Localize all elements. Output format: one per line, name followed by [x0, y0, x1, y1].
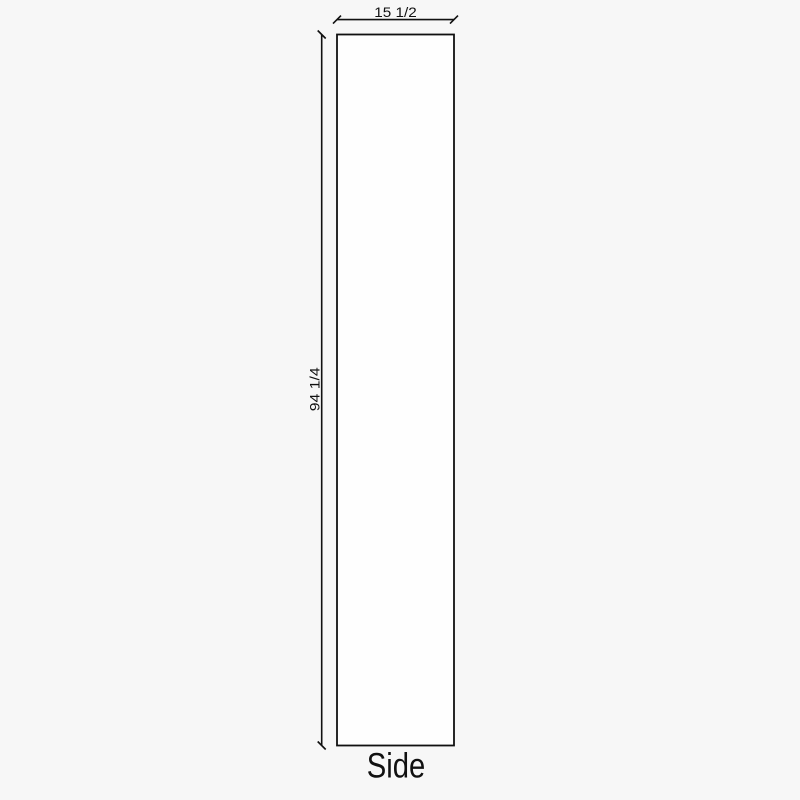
svg-text:94 1/4: 94 1/4 [306, 367, 322, 411]
svg-text:Side: Side [367, 747, 426, 786]
svg-text:15 1/2: 15 1/2 [374, 4, 417, 20]
